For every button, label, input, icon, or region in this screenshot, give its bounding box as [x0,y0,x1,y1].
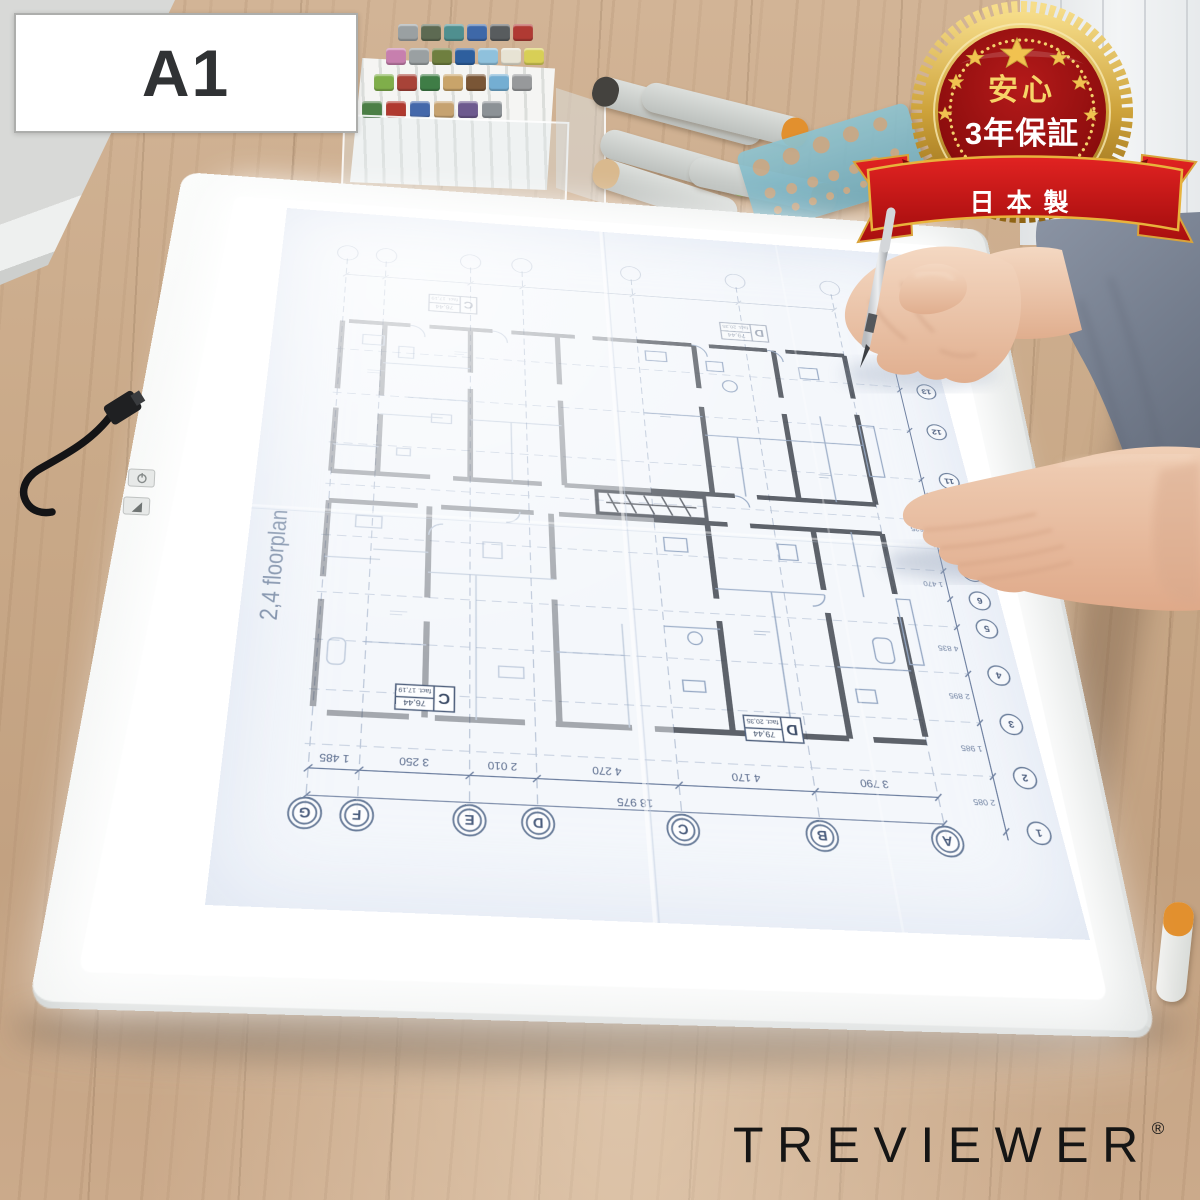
product-photo: 1 485 3 250 2 010 4 270 4 170 3 790 18 9… [0,0,1200,1200]
resting-hand [885,446,1200,610]
size-label: A1 [142,35,230,111]
power-cable [24,386,148,512]
brand-logo: TREVIEWER® [733,1116,1200,1176]
size-label-box: A1 [14,13,358,133]
registered-trademark-icon: ® [1152,1119,1165,1138]
brand-name: TREVIEWER [733,1117,1152,1173]
